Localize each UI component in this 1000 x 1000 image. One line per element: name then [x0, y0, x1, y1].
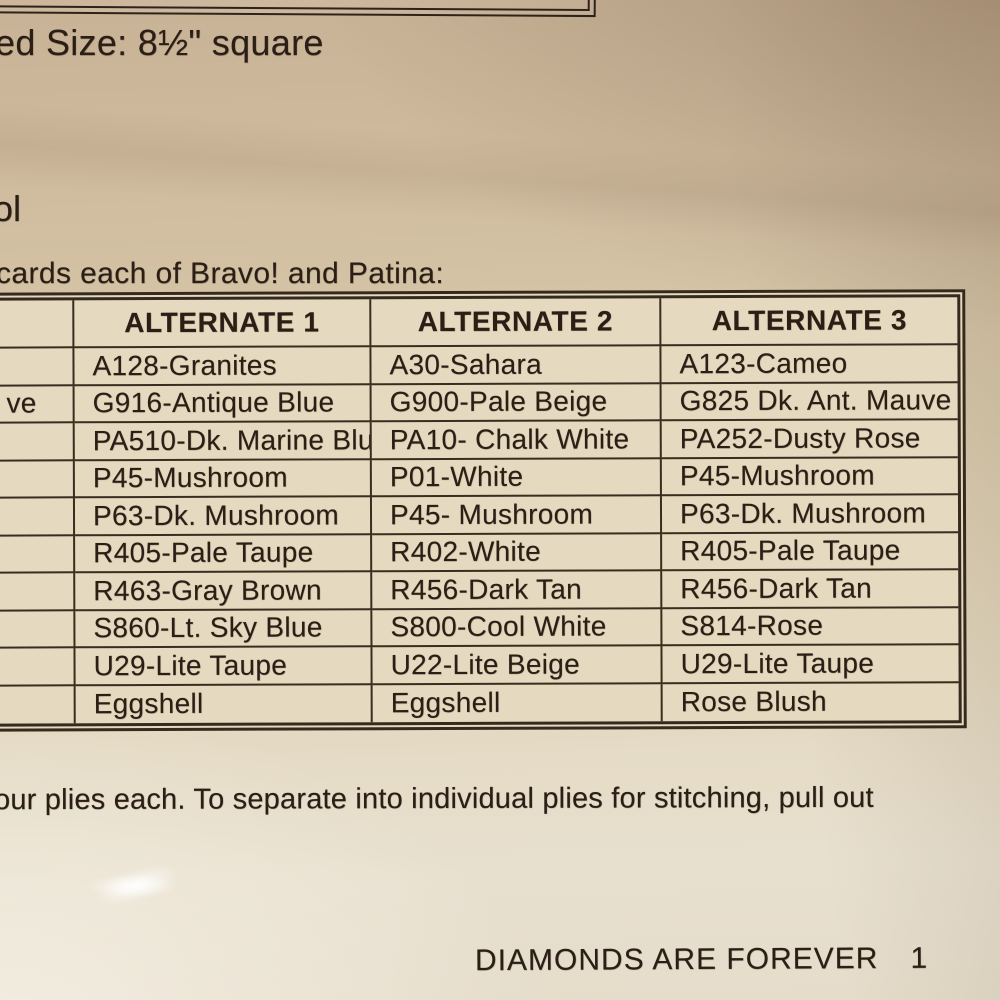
table-cell: S860-Lt. Sky Blue	[75, 610, 372, 649]
table-cell: A128-Granites	[74, 347, 371, 386]
table-row: PA510-Dk. Marine BluePA10- Chalk WhitePA…	[0, 420, 958, 461]
table-row: R463-Gray BrownR456-Dark TanR456-Dark Ta…	[0, 570, 958, 611]
table-cell: A30-Sahara	[371, 346, 661, 385]
table-cell: PA510-Dk. Marine Blue	[75, 422, 372, 461]
table-cell: U29-Lite Taupe	[662, 645, 958, 684]
table-row: P45-MushroomP01-WhiteP45-Mushroom	[0, 458, 958, 499]
table-cell: ve	[0, 386, 75, 424]
table-cell: U22-Lite Beige	[372, 646, 662, 685]
table-cell	[0, 498, 75, 536]
table-cell: P45- Mushroom	[372, 496, 662, 535]
table-cell	[0, 686, 76, 724]
cutoff-word-fragment: ol	[0, 188, 21, 230]
table-cell: A123-Cameo	[661, 345, 957, 384]
table-row: S860-Lt. Sky BlueS800-Cool WhiteS814-Ros…	[0, 608, 958, 649]
table-row: R405-Pale TaupeR402-WhiteR405-Pale Taupe	[0, 533, 958, 574]
table-cell	[0, 611, 75, 649]
table-row: veG916-Antique BlueG900-Pale BeigeG825 D…	[0, 383, 958, 424]
cutoff-frame-box	[0, 0, 596, 17]
finished-size-text-fragment: ed Size: 8½" square	[0, 22, 324, 64]
table-cell: P45-Mushroom	[662, 458, 958, 497]
table-cell	[0, 536, 75, 574]
table-cell: P63-Dk. Mushroom	[662, 495, 958, 534]
table-cell: G916-Antique Blue	[75, 385, 372, 424]
table-cell: P01-White	[372, 459, 662, 498]
table-row: EggshellEggshellRose Blush	[0, 683, 959, 724]
table-header-row: ALTERNATE 1ALTERNATE 2ALTERNATE 3	[0, 297, 957, 349]
column-header: ALTERNATE 3	[661, 297, 957, 346]
page-number: 1	[910, 942, 928, 975]
table-cell: G825 Dk. Ant. Mauve	[662, 383, 958, 422]
table-cell: P63-Dk. Mushroom	[75, 497, 372, 536]
cutoff-frame-box-inner-border	[0, 0, 590, 11]
column-header: ALTERNATE 2	[371, 298, 661, 347]
table-cell: Eggshell	[373, 684, 663, 723]
table-row: U29-Lite TaupeU22-Lite BeigeU29-Lite Tau…	[0, 645, 959, 686]
table-cell: R463-Gray Brown	[75, 572, 372, 611]
table-cell: G900-Pale Beige	[372, 384, 662, 423]
table-intro-text-fragment: cards each of Bravo! and Patina:	[0, 257, 444, 291]
table-row: A128-GranitesA30-SaharaA123-Cameo	[0, 345, 958, 386]
table-cell: R456-Dark Tan	[372, 571, 662, 610]
table-cell: R405-Pale Taupe	[662, 533, 958, 572]
table-cell	[0, 461, 75, 499]
table-cell: PA10- Chalk White	[372, 421, 662, 460]
table-cell: U29-Lite Taupe	[75, 647, 372, 686]
table-cell: S814-Rose	[662, 608, 958, 647]
table-cell: P45-Mushroom	[75, 460, 372, 499]
table-cell	[0, 573, 75, 611]
table-cell: PA252-Dusty Rose	[662, 420, 958, 459]
plies-instruction-text-fragment: our plies each. To separate into individ…	[0, 782, 874, 817]
camera-glare-highlight	[92, 858, 182, 913]
photo-of-printed-pattern-page: { "page": { "size_fragment": "ed Size: 8…	[0, 0, 1000, 1000]
table-cell	[0, 348, 75, 386]
page-footer: DIAMONDS ARE FOREVER1	[475, 942, 928, 978]
table-cell: Eggshell	[76, 685, 373, 724]
pattern-title: DIAMONDS ARE FOREVER	[475, 942, 879, 977]
table-cell: R405-Pale Taupe	[75, 535, 372, 574]
table-cell: R456-Dark Tan	[662, 570, 958, 609]
column-header: ALTERNATE 1	[74, 299, 371, 348]
column-header	[0, 300, 74, 348]
table-cell	[0, 648, 76, 686]
alternates-color-table: ALTERNATE 1ALTERNATE 2ALTERNATE 3A128-Gr…	[0, 289, 967, 732]
table-cell: S800-Cool White	[372, 609, 662, 648]
table-cell	[0, 423, 75, 461]
table-cell: Rose Blush	[663, 683, 959, 722]
table-cell: R402-White	[372, 534, 662, 573]
table-row: P63-Dk. MushroomP45- MushroomP63-Dk. Mus…	[0, 495, 958, 536]
